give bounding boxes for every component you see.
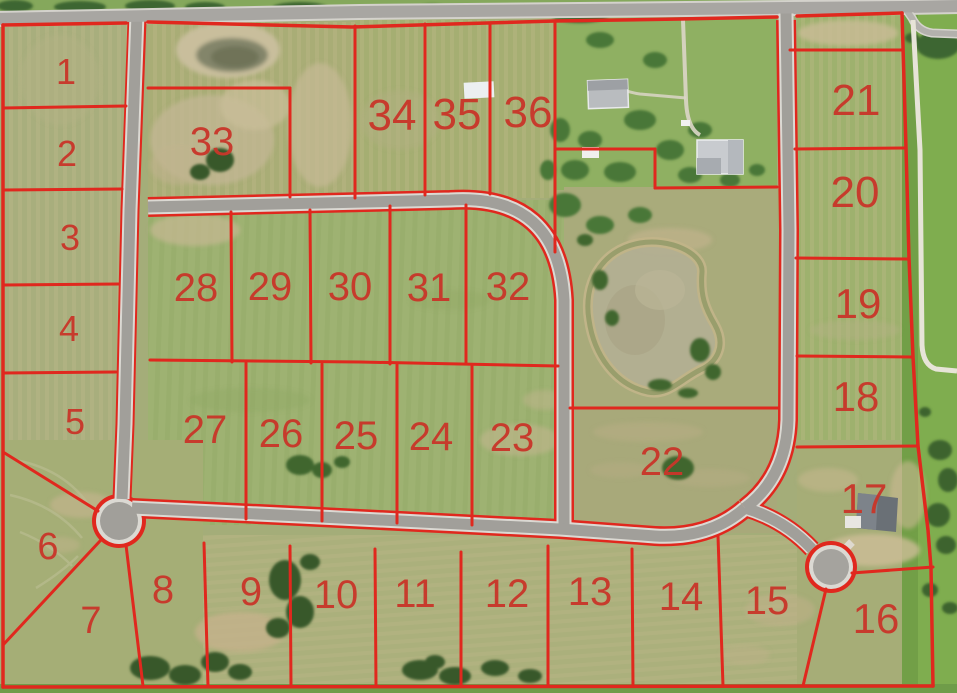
- lot-number-1: 1: [56, 51, 76, 92]
- lot-number-31: 31: [407, 266, 452, 310]
- lot-number-3: 3: [60, 217, 80, 258]
- lot-number-21: 21: [832, 76, 881, 125]
- lot-number-28: 28: [174, 266, 219, 310]
- lot-number-6: 6: [37, 526, 58, 568]
- lot-number-11: 11: [394, 572, 436, 616]
- lot-number-33: 33: [190, 120, 235, 164]
- lot-number-19: 19: [835, 280, 882, 327]
- lot-number-16: 16: [853, 595, 900, 642]
- lot-number-27: 27: [183, 408, 228, 452]
- lot-number-4: 4: [59, 308, 79, 349]
- lot-number-23: 23: [490, 416, 535, 460]
- lot-number-8: 8: [152, 568, 174, 612]
- lot-number-34: 34: [368, 91, 417, 140]
- lot-number-26: 26: [259, 412, 304, 456]
- aerial-plat-map: 1 2 3 4 5 6 7 8 9 10 11 12 13 14 15 16 1…: [0, 0, 957, 693]
- lot-number-7: 7: [80, 600, 101, 642]
- lot-number-5: 5: [65, 401, 85, 442]
- lot-number-9: 9: [240, 570, 262, 614]
- lot-number-20: 20: [831, 168, 880, 217]
- lot-number-10: 10: [314, 573, 359, 617]
- plat-map-canvas: 1 2 3 4 5 6 7 8 9 10 11 12 13 14 15 16 1…: [0, 0, 957, 693]
- lot-number-18: 18: [833, 373, 880, 420]
- lot-number-12: 12: [485, 572, 530, 616]
- lot-number-24: 24: [409, 415, 454, 459]
- lot-number-30: 30: [328, 265, 373, 309]
- lot-number-36: 36: [504, 88, 553, 137]
- lot-number-14: 14: [659, 575, 704, 619]
- lot-number-13: 13: [568, 570, 613, 614]
- lot-number-35: 35: [433, 90, 482, 139]
- lot-number-32: 32: [486, 265, 531, 309]
- lot-number-25: 25: [334, 414, 379, 458]
- lot-number-2: 2: [57, 133, 77, 174]
- lot-number-15: 15: [745, 579, 790, 623]
- lot-number-29: 29: [248, 265, 293, 309]
- lot-number-22: 22: [640, 440, 685, 484]
- lot-number-17: 17: [841, 475, 888, 522]
